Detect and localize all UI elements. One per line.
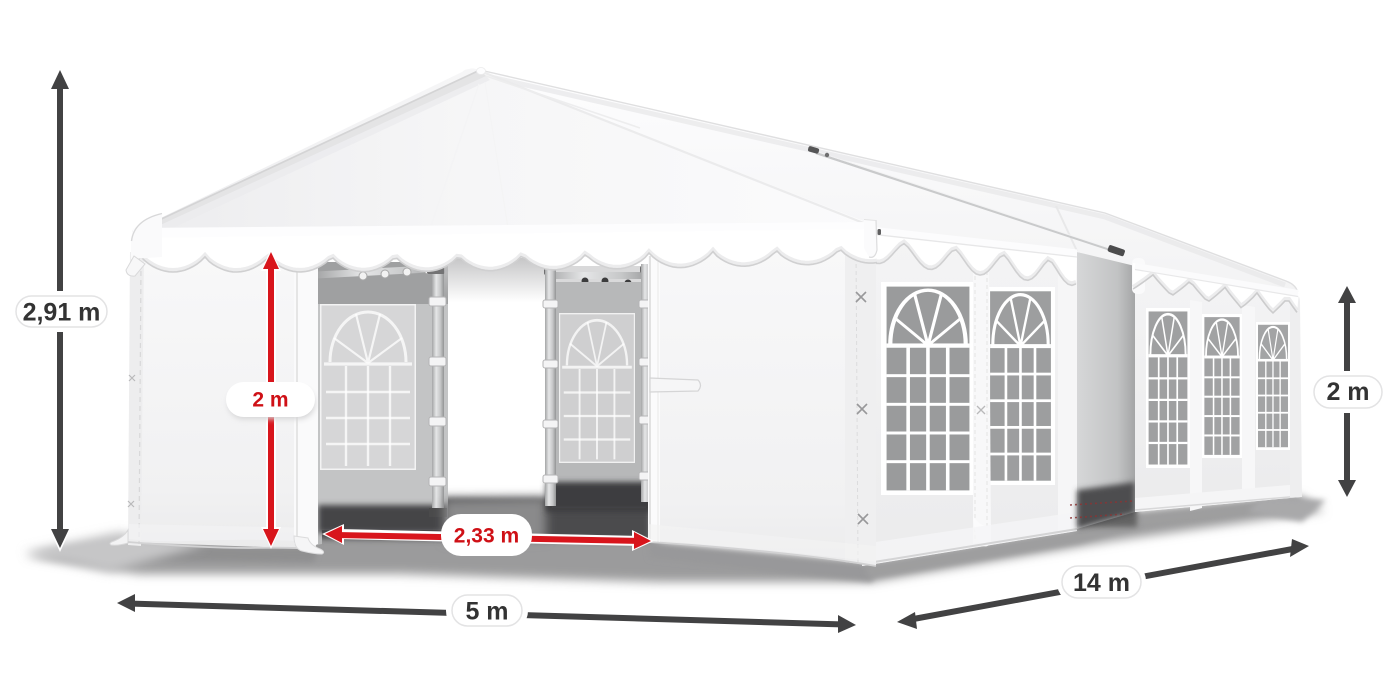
svg-text:2,33 m: 2,33 m bbox=[454, 525, 519, 548]
svg-text:2 m: 2 m bbox=[252, 389, 288, 412]
svg-text:5 m: 5 m bbox=[465, 598, 508, 626]
svg-text:2,91 m: 2,91 m bbox=[23, 299, 101, 327]
svg-text:2 m: 2 m bbox=[1326, 378, 1369, 406]
svg-text:14 m: 14 m bbox=[1073, 569, 1130, 597]
